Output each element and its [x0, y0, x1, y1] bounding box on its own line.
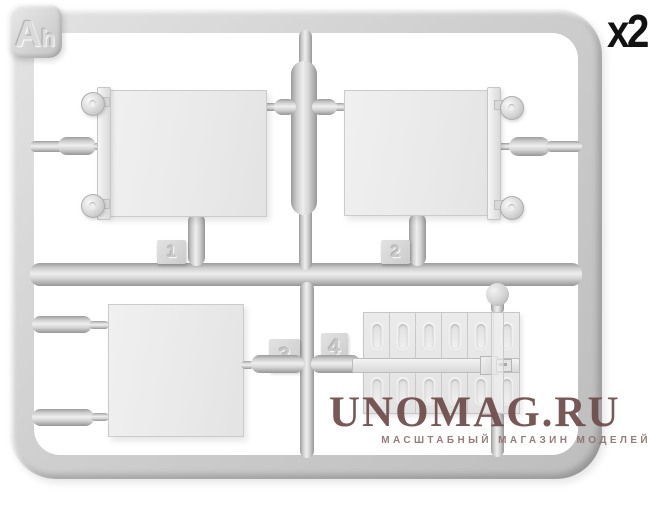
part-panel-bottom-left [108, 304, 244, 437]
feed-bottom-left-upper [32, 316, 92, 333]
gate-bulge-left-panel-right [274, 99, 296, 115]
gate-bulge-bottom-left [251, 355, 304, 373]
runner-below-right-panel [409, 213, 426, 266]
part-number-tag-2: 2 [381, 240, 410, 264]
sprue-photo: 1 2 3 4 [0, 0, 670, 506]
feed-bottom-left-upper-pin [89, 321, 109, 329]
runner-center-rod [291, 61, 317, 215]
gate-bulge-right-panel-left [312, 99, 337, 115]
part-number-tag-1: 1 [157, 240, 186, 264]
feed-bottom-left-lower-pin [91, 413, 109, 421]
hinge-knuckle [81, 194, 105, 218]
hinge-knuckle [81, 92, 105, 116]
part-panel-top-left [108, 90, 267, 217]
feed-left-top-bulge [58, 137, 96, 155]
watermark: UNOMAG.RU МАСШТАБНЫЙ МАГАЗИН МОДЕЛЕЙ [329, 390, 651, 446]
runner-below-left-panel [188, 213, 205, 266]
runner-louvre-ball [486, 283, 509, 306]
part-panel-top-right [344, 90, 496, 216]
quantity-label: x2 [607, 4, 660, 58]
hinge-knuckle [500, 96, 524, 120]
sprue-label-tag: Ah [8, 4, 62, 58]
runner-center-bottom [300, 282, 314, 458]
part-number-1: 1 [167, 242, 176, 262]
sprue-label-text: Ah [15, 10, 55, 52]
watermark-subtitle: МАСШТАБНЫЙ МАГАЗИН МОДЕЛЕЙ [329, 435, 651, 446]
part-number-2: 2 [391, 242, 400, 262]
watermark-title: UNOMAG.RU [329, 390, 651, 435]
feed-bottom-left-lower [32, 409, 94, 426]
hinge-knuckle [500, 196, 524, 220]
feed-right-top [546, 141, 582, 152]
feed-right-top-bulge [509, 137, 550, 156]
